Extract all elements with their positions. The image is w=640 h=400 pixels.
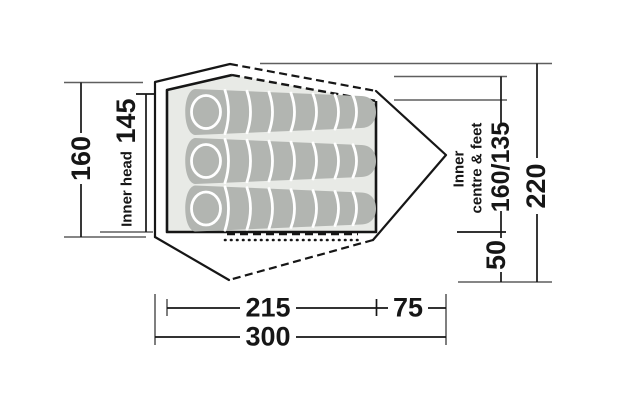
label-bottom-vestibule: 75 — [393, 293, 423, 323]
label-right-total: 220 — [521, 163, 551, 208]
label-bottom-total: 300 — [245, 322, 290, 352]
outer-edge-bottom-dashed — [229, 240, 373, 280]
label-inner-head: Inner head — [119, 151, 136, 227]
sleeping-bag-1 — [185, 89, 376, 135]
outer-edge-bottom-left — [155, 237, 229, 280]
tent-dimension-diagram: 160 145 Inner head Inner centre & feet 1… — [0, 0, 640, 400]
label-left-total: 160 — [66, 136, 96, 181]
sleeping-bag-2 — [185, 138, 376, 184]
outer-edge-vestibule — [373, 91, 446, 240]
label-inner-head-value: 145 — [111, 98, 141, 143]
sleeping-bags — [185, 89, 376, 232]
label-inner-centre-feet-value: 160/135 — [487, 122, 515, 212]
label-inner-centre-line1: Inner — [451, 151, 468, 188]
sleeping-bag-3 — [185, 186, 376, 232]
sleeping-bag-body — [185, 138, 376, 184]
label-inner-centre-line2: centre & feet — [469, 123, 486, 214]
label-bottom-inner: 215 — [245, 293, 290, 323]
diagram-canvas: 160 145 Inner head Inner centre & feet 1… — [0, 0, 640, 400]
label-vestibule-depth: 50 — [481, 240, 511, 270]
sleeping-bag-body — [185, 186, 376, 232]
sleeping-bag-body — [185, 89, 376, 135]
